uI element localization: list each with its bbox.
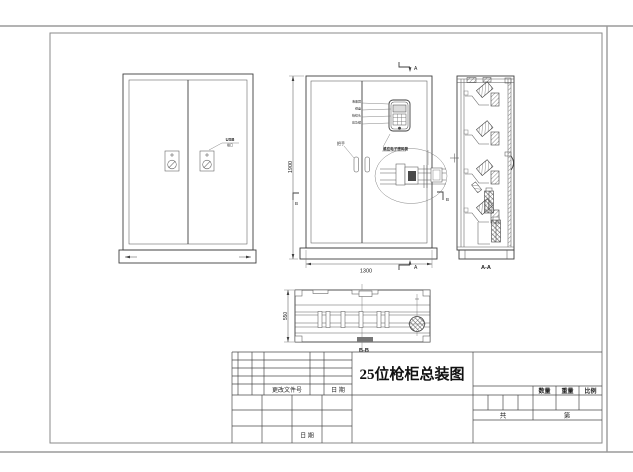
drawing-title: 25位枪柜总装图 [359,365,464,383]
handle-right-icon [365,157,370,172]
dim-1300-label: 1300 [360,269,372,275]
cad-linework: USB 插口 把手 [0,0,633,472]
lock-dial-left-icon [165,151,179,171]
section-b-right-label: B [446,197,449,202]
scale-label: 比例 [584,387,596,395]
elevation-view: 把手 液晶屏 键盘 指纹头 应急锁 感 [288,62,449,275]
lock-mechanism-detail [375,149,447,204]
handle-left-icon [354,157,359,172]
cad-drawing-sheet: USB 插口 把手 [0,0,633,472]
callout-keys: 键盘 [355,106,361,111]
keypad-lock-icon [389,100,410,131]
front-view: USB 插口 [119,74,256,263]
left-wall-centermark [450,154,459,163]
bottom-section-view: 550 B-B [283,284,430,354]
total-sheets-label: 共 [500,411,507,420]
dim-height: 1900 [288,76,304,259]
usb-note-line2: 插口 [227,142,233,147]
lock-dial-right-icon [200,151,214,171]
sheet-no-label: 第 [564,411,571,420]
section-mark-a-top: A [399,62,418,72]
title-block: 更改文件号 日 期 25位枪柜总装图 数量 重量 比例 共 第 日 期 [232,352,602,443]
keypad-callouts: 液晶屏 键盘 指纹头 应急锁 [352,99,391,125]
handle-callout: 把手 [337,140,354,158]
drawing-frame [50,33,602,443]
bottom-tab [357,337,373,342]
callout-fingerprint: 指纹头 [352,113,361,118]
dim-depth: 550 [283,290,294,342]
callout-screen: 液晶屏 [352,99,361,104]
section-a-top-label: A [414,66,418,72]
date-label-top: 日 期 [331,386,345,394]
lock-note-label: 感应电子密码锁 [383,146,409,151]
date-label-bottom: 日 期 [300,432,314,440]
section-a-bottom-label: A [414,265,418,271]
magazine-holder-2 [492,217,501,242]
section-mark-b-left: B [293,193,299,206]
section-aa-label: A-A [481,265,491,271]
gun-rack-3 [464,160,499,184]
side-section-view: A-A [450,76,514,271]
section-b-left-label: B [295,201,298,206]
lock-note: 感应电子密码锁 [382,134,409,151]
handle-label: 把手 [337,140,345,146]
usb-note: USB 插口 [209,137,239,150]
base-dim-arrows [125,256,251,259]
usb-note-line1: USB [226,137,235,142]
section-bb-label: B-B [359,348,369,354]
weight-label: 重量 [561,387,573,395]
magazine-holder-1 [485,188,494,213]
gun-rack-1 [464,82,499,106]
callout-emergency: 应急锁 [352,120,361,125]
change-file-no-label: 更改文件号 [272,386,302,394]
dim-1900-label: 1900 [288,161,294,173]
dim-550-label: 550 [283,312,289,321]
section-mark-a-bottom: A [399,260,418,271]
gun-rack-2 [464,121,499,145]
quantity-label: 数量 [538,387,550,395]
